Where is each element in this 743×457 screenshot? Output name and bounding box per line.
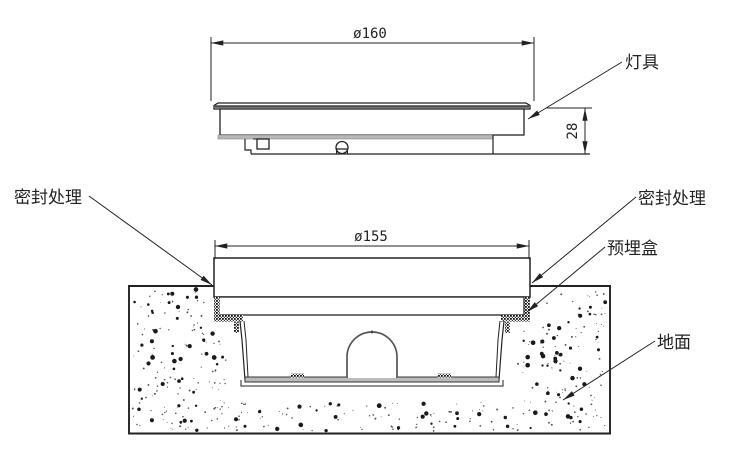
cable-entry-arch [347,332,397,378]
dimension-155-label: ø155 [354,229,388,245]
flange-dark-band [215,105,529,108]
installation-section-view: ø155 密封处理 密封处理 预埋盒 地面 [14,188,706,434]
luminaire-side-view: ø160 28 灯具 [211,26,659,154]
box-foot-left [291,374,304,378]
box-wall-right-seal [505,322,510,333]
seal-strip-right-horizontal [501,315,530,322]
dimension-diameter-160: ø160 [211,26,534,101]
ground-callout: 地面 [563,333,691,400]
seal-left-label: 密封处理 [14,188,82,208]
ground-label: 地面 [657,333,691,353]
dimension-height-28: 28 [547,108,592,154]
luminaire-label: 灯具 [625,53,659,73]
cable-gland [336,142,348,154]
box-wall-left-outer [240,321,245,380]
box-wall-left-seal [234,322,239,333]
seal-callout-left: 密封处理 [14,188,212,285]
underside-left-hook [245,139,251,154]
mounting-clip [257,139,269,149]
box-wall-right-outer [499,321,504,380]
inground-luminaire-drawing: ø160 28 灯具 [0,0,743,457]
seal-right-label: 密封处理 [638,189,706,209]
seal-strip-left-horizontal [214,315,243,322]
luminaire-body [220,109,524,135]
luminaire-callout: 灯具 [528,53,659,119]
box-foot-right [438,374,451,378]
embedded-box-label: 预埋盒 [607,239,658,259]
dimension-28-label: 28 [565,123,581,140]
luminaire-bezel [219,297,524,315]
seal-callout-right: 密封处理 [532,189,706,283]
embedded-box-callout: 预埋盒 [527,239,658,312]
technical-drawing-page: ø160 28 灯具 [0,0,743,457]
luminaire-slab [214,258,530,297]
dimension-160-label: ø160 [353,26,387,42]
dimension-diameter-155: ø155 [215,229,529,259]
